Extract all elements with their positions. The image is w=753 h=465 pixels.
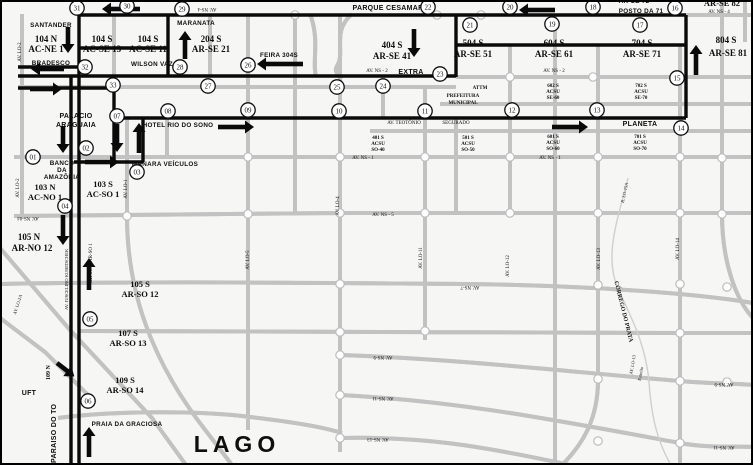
junction-circle bbox=[676, 280, 684, 288]
map-label: AR-SE 81 bbox=[709, 48, 748, 58]
map-label: AC-NE 1 bbox=[28, 44, 64, 54]
stop-number: 19 bbox=[549, 21, 557, 29]
map-label: LAGO bbox=[194, 431, 280, 457]
map-label: AV. NS - 2 bbox=[366, 69, 388, 74]
map-label: AV. NS-4 bbox=[197, 6, 216, 11]
route-stop-16: 16 bbox=[668, 2, 682, 15]
map-label: 604 S bbox=[544, 38, 565, 48]
route-stop-24: 24 bbox=[376, 79, 390, 93]
map-label: AV. NS-9 bbox=[373, 354, 392, 359]
route-stop-21: 21 bbox=[463, 18, 477, 32]
map-label: AV. LO-1 bbox=[124, 179, 129, 199]
direction-arrow-icon bbox=[83, 427, 96, 457]
stop-number: 10 bbox=[336, 108, 344, 116]
junction-circle bbox=[723, 283, 731, 291]
junction-circle bbox=[676, 329, 684, 337]
map-label: 804 S bbox=[716, 35, 737, 45]
junction-circle bbox=[336, 351, 344, 359]
junction-circle bbox=[594, 437, 602, 445]
junction-circle bbox=[421, 209, 429, 217]
map-label: AR-SE 21 bbox=[192, 44, 231, 54]
junction-circle bbox=[506, 209, 514, 217]
map-label: AV. LO-2 bbox=[18, 42, 23, 62]
stop-number: 09 bbox=[245, 107, 253, 115]
map-label: 501 S bbox=[462, 136, 474, 141]
map-label: AV. LO-12 bbox=[506, 255, 511, 277]
map-label: AV. LO-13 bbox=[597, 248, 602, 270]
map-label: SO-50 bbox=[461, 148, 475, 153]
map-label: AR-SO 12 bbox=[121, 289, 158, 299]
map-label: AV. LO-4 bbox=[336, 196, 341, 216]
map-label: AR-SE 41 bbox=[373, 51, 412, 61]
stop-number: 27 bbox=[205, 83, 213, 91]
stop-number: 07 bbox=[114, 113, 122, 121]
junction-circle bbox=[506, 153, 514, 161]
route-map-canvas: SANTANDER104 NAC-NE 1BRADESCO104 SAC-SE … bbox=[2, 2, 751, 463]
stop-number: 25 bbox=[334, 84, 342, 92]
map-label: 109 S bbox=[115, 375, 135, 385]
map-label: AC-NO 1 bbox=[28, 192, 62, 202]
route-stop-33: 33 bbox=[106, 78, 120, 92]
junction-circle bbox=[718, 210, 726, 218]
stop-number: 33 bbox=[110, 82, 118, 90]
junction-circle bbox=[594, 153, 602, 161]
map-label: AR-SE 61 bbox=[535, 49, 574, 59]
route-stop-29: 29 bbox=[175, 2, 189, 16]
map-label: AR-SO 14 bbox=[106, 385, 144, 395]
map-label: AV. NS-7 bbox=[460, 284, 479, 289]
junction-circle bbox=[676, 153, 684, 161]
stop-number: 31 bbox=[74, 5, 82, 13]
direction-arrow-icon bbox=[57, 215, 70, 245]
route-stop-05: 05 bbox=[83, 312, 97, 326]
map-label: SE-60 bbox=[547, 96, 560, 101]
map-label: PREFEITURA bbox=[447, 94, 480, 99]
map-label: DA bbox=[57, 167, 67, 174]
stop-number: 08 bbox=[165, 108, 173, 116]
map-label: PRAIA DA GRACIOSA bbox=[92, 421, 163, 428]
map-label: AR-SO 13 bbox=[109, 338, 146, 348]
route-stop-26: 26 bbox=[241, 58, 255, 72]
junction-circle bbox=[421, 327, 429, 335]
map-label: AMAZÔNIA bbox=[44, 172, 80, 181]
route-stop-19: 19 bbox=[545, 17, 559, 31]
junction-circle bbox=[336, 391, 344, 399]
route-stop-03: 03 bbox=[130, 165, 144, 179]
route-stop-06: 06 bbox=[81, 394, 95, 408]
map-label: PARQUE CESAMAR bbox=[353, 5, 424, 12]
stop-number: 32 bbox=[82, 64, 90, 72]
direction-arrow-icon bbox=[690, 45, 703, 75]
map-label: AV. NS-11 bbox=[713, 444, 735, 449]
map-label: 104 S bbox=[138, 34, 159, 44]
junction-circle bbox=[589, 73, 597, 81]
route-stop-13: 13 bbox=[590, 103, 604, 117]
map-label: MARANATA bbox=[177, 20, 215, 27]
route-stop-32: 32 bbox=[78, 60, 92, 74]
map-label: FEIRA 304S bbox=[260, 52, 298, 59]
stop-number: 12 bbox=[509, 107, 517, 115]
map-label: AV. TEOTÔNIO bbox=[387, 120, 421, 126]
stop-number: 24 bbox=[380, 83, 388, 91]
stop-number: 04 bbox=[62, 203, 70, 211]
junction-circle bbox=[244, 210, 252, 218]
route-stop-11: 11 bbox=[418, 104, 432, 118]
route-stop-10: 10 bbox=[332, 104, 346, 118]
stop-number: 30 bbox=[124, 3, 132, 11]
stop-number: 06 bbox=[85, 398, 93, 406]
map-label: AC-SE 13 bbox=[83, 44, 122, 54]
route-stop-22: 22 bbox=[421, 2, 435, 14]
map-labels: SANTANDER104 NAC-NE 1BRADESCO104 SAC-SE … bbox=[12, 2, 748, 463]
map-label: SO-40 bbox=[371, 148, 385, 153]
map-label: BANCO bbox=[50, 160, 75, 167]
stop-number: 11 bbox=[422, 108, 429, 116]
map-label: 104 N bbox=[35, 34, 58, 44]
map-label: UFT bbox=[22, 390, 37, 397]
map-label: ACSU bbox=[546, 90, 560, 95]
direction-arrow-icon bbox=[57, 126, 70, 153]
junction-circle bbox=[676, 209, 684, 217]
map-label: AR-SO12 AR-SO 1 bbox=[89, 243, 94, 283]
map-label: 404 S bbox=[382, 40, 403, 50]
map-label: MUNICIPAL bbox=[448, 101, 478, 106]
map-label: 702 S bbox=[635, 84, 647, 89]
map-label: AV. NS-9 bbox=[714, 381, 733, 386]
map-label: AV. NS - 1 bbox=[352, 156, 374, 161]
map-label: 602 S bbox=[547, 84, 559, 89]
map-label: ARAGUAIA bbox=[56, 122, 96, 129]
stop-number: 26 bbox=[245, 62, 253, 70]
stop-number: 01 bbox=[30, 154, 38, 162]
junction-circle bbox=[506, 73, 514, 81]
route-stop-27: 27 bbox=[201, 79, 215, 93]
route-stop-14: 14 bbox=[674, 121, 688, 135]
junction-circle bbox=[123, 212, 131, 220]
map-label: 104 S bbox=[92, 34, 113, 44]
junction-circle bbox=[676, 377, 684, 385]
map-label: WILSON VAZ bbox=[131, 61, 173, 68]
map-label: SO-70 bbox=[633, 147, 647, 152]
map-label: AV. NS - 4 bbox=[708, 10, 730, 15]
map-label: ACSU bbox=[633, 141, 647, 146]
map-label: AV. NS - 5 bbox=[372, 213, 394, 218]
map-label: AR-SE 82 bbox=[704, 2, 740, 8]
route-stop-01: 01 bbox=[26, 150, 40, 164]
bus-route-map: SANTANDER104 NAC-NE 1BRADESCO104 SAC-SE … bbox=[0, 0, 753, 465]
map-label: EXTRA bbox=[398, 69, 423, 76]
route-stop-17: 17 bbox=[633, 18, 647, 32]
route-stop-28: 28 bbox=[173, 60, 187, 74]
map-label: AR-SE 72 bbox=[619, 2, 650, 5]
junction-circle bbox=[594, 209, 602, 217]
map-label: SANTANDER bbox=[30, 22, 72, 29]
stop-number: 15 bbox=[674, 75, 682, 83]
junction-circle bbox=[718, 154, 726, 162]
stop-number: 17 bbox=[637, 22, 645, 30]
map-label: AV. NS-13 bbox=[367, 436, 389, 441]
map-label: PARAISO DO TO bbox=[51, 403, 58, 463]
map-label: 105 S bbox=[130, 279, 150, 289]
map-label: SE-70 bbox=[635, 96, 648, 101]
junction-circle bbox=[336, 280, 344, 288]
stop-number: 02 bbox=[83, 145, 91, 153]
stop-number: 16 bbox=[672, 5, 680, 13]
map-label: AV. LO-11 bbox=[419, 247, 424, 269]
map-label: HOTEL RIO DO SONO bbox=[143, 122, 214, 129]
map-label: ACSU bbox=[546, 141, 560, 146]
map-label: AC-SO 1 bbox=[87, 189, 120, 199]
map-label: AV. NS-11 bbox=[372, 395, 394, 400]
map-label: 601 S bbox=[547, 135, 559, 140]
map-label: PALACIO bbox=[59, 113, 92, 120]
map-label: 103 N bbox=[34, 182, 56, 192]
map-label: AV. LO-2 bbox=[16, 178, 21, 198]
map-label: AV. NS - 1 bbox=[539, 156, 561, 161]
route-stop-08: 08 bbox=[161, 104, 175, 118]
map-label: ACSU bbox=[461, 142, 475, 147]
route-stop-20: 20 bbox=[503, 2, 517, 14]
map-label: AR-SE 71 bbox=[623, 49, 662, 59]
map-label: AR-NO 12 bbox=[12, 243, 53, 253]
route-stop-04: 04 bbox=[58, 199, 72, 213]
stop-number: 29 bbox=[179, 6, 187, 14]
route-stop-30: 30 bbox=[120, 2, 134, 13]
route-stop-18: 18 bbox=[586, 2, 600, 14]
junction-circle bbox=[594, 375, 602, 383]
route-stop-09: 09 bbox=[241, 103, 255, 117]
stop-number: 03 bbox=[134, 169, 142, 177]
route-stop-25: 25 bbox=[330, 80, 344, 94]
map-label: 105 N bbox=[18, 232, 41, 242]
map-label: AC-SE 11 bbox=[129, 44, 167, 54]
map-label: PLANETA bbox=[623, 121, 658, 128]
map-label: ATTM bbox=[473, 86, 488, 91]
junction-circle bbox=[421, 153, 429, 161]
map-label: AV. NS - 2 bbox=[543, 69, 565, 74]
direction-arrow-icon bbox=[30, 83, 62, 96]
map-label: 204 S bbox=[201, 34, 222, 44]
route-stop-15: 15 bbox=[670, 71, 684, 85]
map-label: AV. NS-04 bbox=[17, 215, 39, 220]
map-label: 701 S bbox=[634, 135, 646, 140]
junction-circle bbox=[676, 439, 684, 447]
stop-number: 22 bbox=[425, 4, 433, 12]
map-label: AR-SE 51 bbox=[454, 49, 493, 59]
stream-corrego bbox=[612, 178, 671, 463]
route-stop-23: 23 bbox=[433, 67, 447, 81]
junction-circle bbox=[244, 153, 252, 161]
stop-number: 18 bbox=[590, 4, 598, 12]
route-stop-12: 12 bbox=[505, 103, 519, 117]
map-label: AV. LO-14 bbox=[676, 238, 681, 260]
map-label: SEGURADO bbox=[442, 121, 470, 126]
stop-number: 14 bbox=[678, 125, 686, 133]
junction-circle bbox=[336, 434, 344, 442]
junction-circle bbox=[336, 153, 344, 161]
route-stop-31: 31 bbox=[70, 2, 84, 15]
map-label: AV. JUSCELINO KUBITSCHEK bbox=[64, 248, 69, 310]
map-label: AV. LO-2A bbox=[12, 293, 23, 315]
map-label: BRADESCO bbox=[32, 60, 70, 67]
route-stop-07: 07 bbox=[110, 109, 124, 123]
map-label: 103 S bbox=[93, 179, 113, 189]
stop-number: 05 bbox=[87, 316, 95, 324]
map-label: AV. LO-5 bbox=[246, 250, 251, 270]
stop-number: 21 bbox=[467, 22, 475, 30]
map-label: SO-60 bbox=[546, 147, 560, 152]
stop-number: 20 bbox=[507, 4, 515, 12]
map-label: 109 N bbox=[46, 365, 52, 381]
map-label: AV. LO-13 bbox=[628, 354, 636, 375]
stop-number: 23 bbox=[437, 71, 445, 79]
stop-number: 28 bbox=[177, 64, 185, 72]
stop-number: 13 bbox=[594, 107, 602, 115]
map-label: 107 S bbox=[118, 328, 138, 338]
map-label: 704 S bbox=[632, 38, 653, 48]
map-label: POSTO DA 71 bbox=[619, 8, 664, 15]
map-label: ACSU bbox=[371, 142, 385, 147]
map-label: R. LO-15A bbox=[620, 181, 629, 203]
map-label: 504 S bbox=[463, 38, 484, 48]
route-stop-02: 02 bbox=[79, 141, 93, 155]
map-label: 401 S bbox=[372, 136, 384, 141]
map-label: ACSU bbox=[634, 90, 648, 95]
junction-circle bbox=[594, 281, 602, 289]
junction-circle bbox=[336, 328, 344, 336]
direction-arrow-icon bbox=[179, 31, 192, 59]
